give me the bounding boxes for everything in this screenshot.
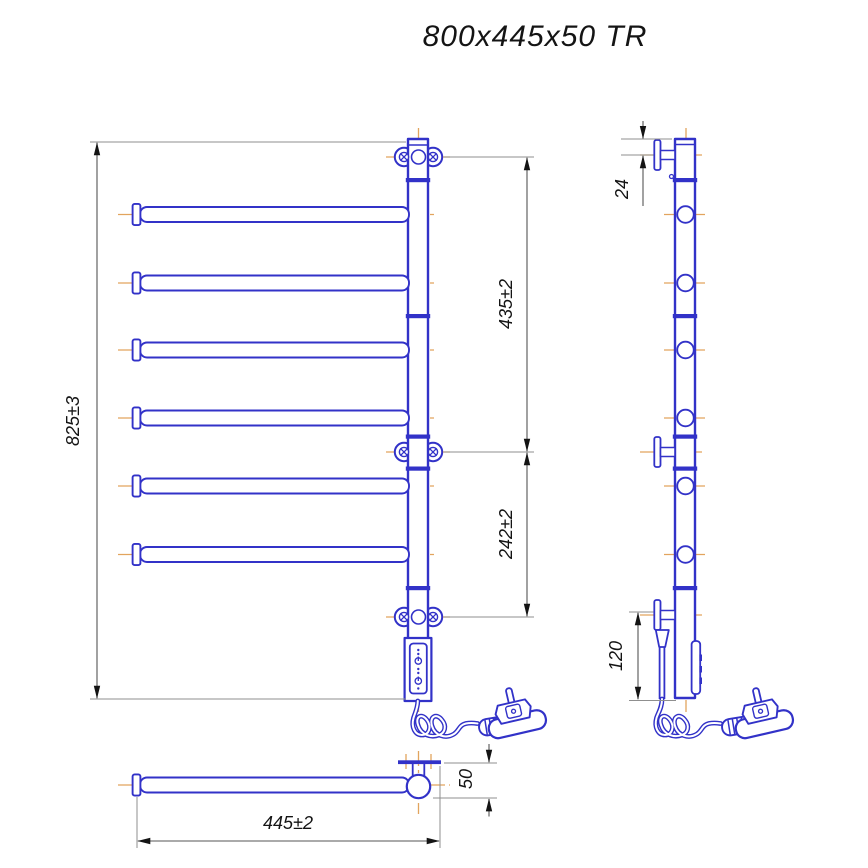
drawing-canvas: 800x445x50 TR (0, 0, 868, 868)
bottom-bar (140, 778, 409, 793)
dim-side-top-offset: 24 (612, 179, 632, 200)
cable-gland (656, 630, 669, 647)
dim-upper-span: 435±2 (496, 279, 516, 329)
side-view (654, 139, 794, 740)
front-view (133, 139, 548, 740)
plug-icon (728, 682, 795, 740)
drawing-title: 800x445x50 TR (423, 20, 648, 53)
side-control-box (692, 641, 702, 694)
side-wall-brackets (654, 140, 675, 647)
heater-control-box (405, 638, 432, 701)
technical-drawing-towel-rail: 800x445x50 TR (0, 0, 868, 868)
bottom-bar-cap (133, 774, 141, 795)
dim-side-bottom-offset: 120 (606, 641, 626, 671)
dim-overall-height: 825±3 (63, 396, 83, 446)
front-bars (133, 204, 409, 565)
front-power-cord (413, 682, 548, 740)
rail-tube-section (407, 775, 430, 798)
dim-lower-span: 242±2 (496, 509, 516, 560)
wall-plate (398, 760, 441, 764)
dim-width: 445±2 (263, 813, 313, 833)
plug-icon (481, 682, 548, 740)
dim-depth: 50 (456, 769, 476, 789)
bottom-view (133, 760, 441, 798)
